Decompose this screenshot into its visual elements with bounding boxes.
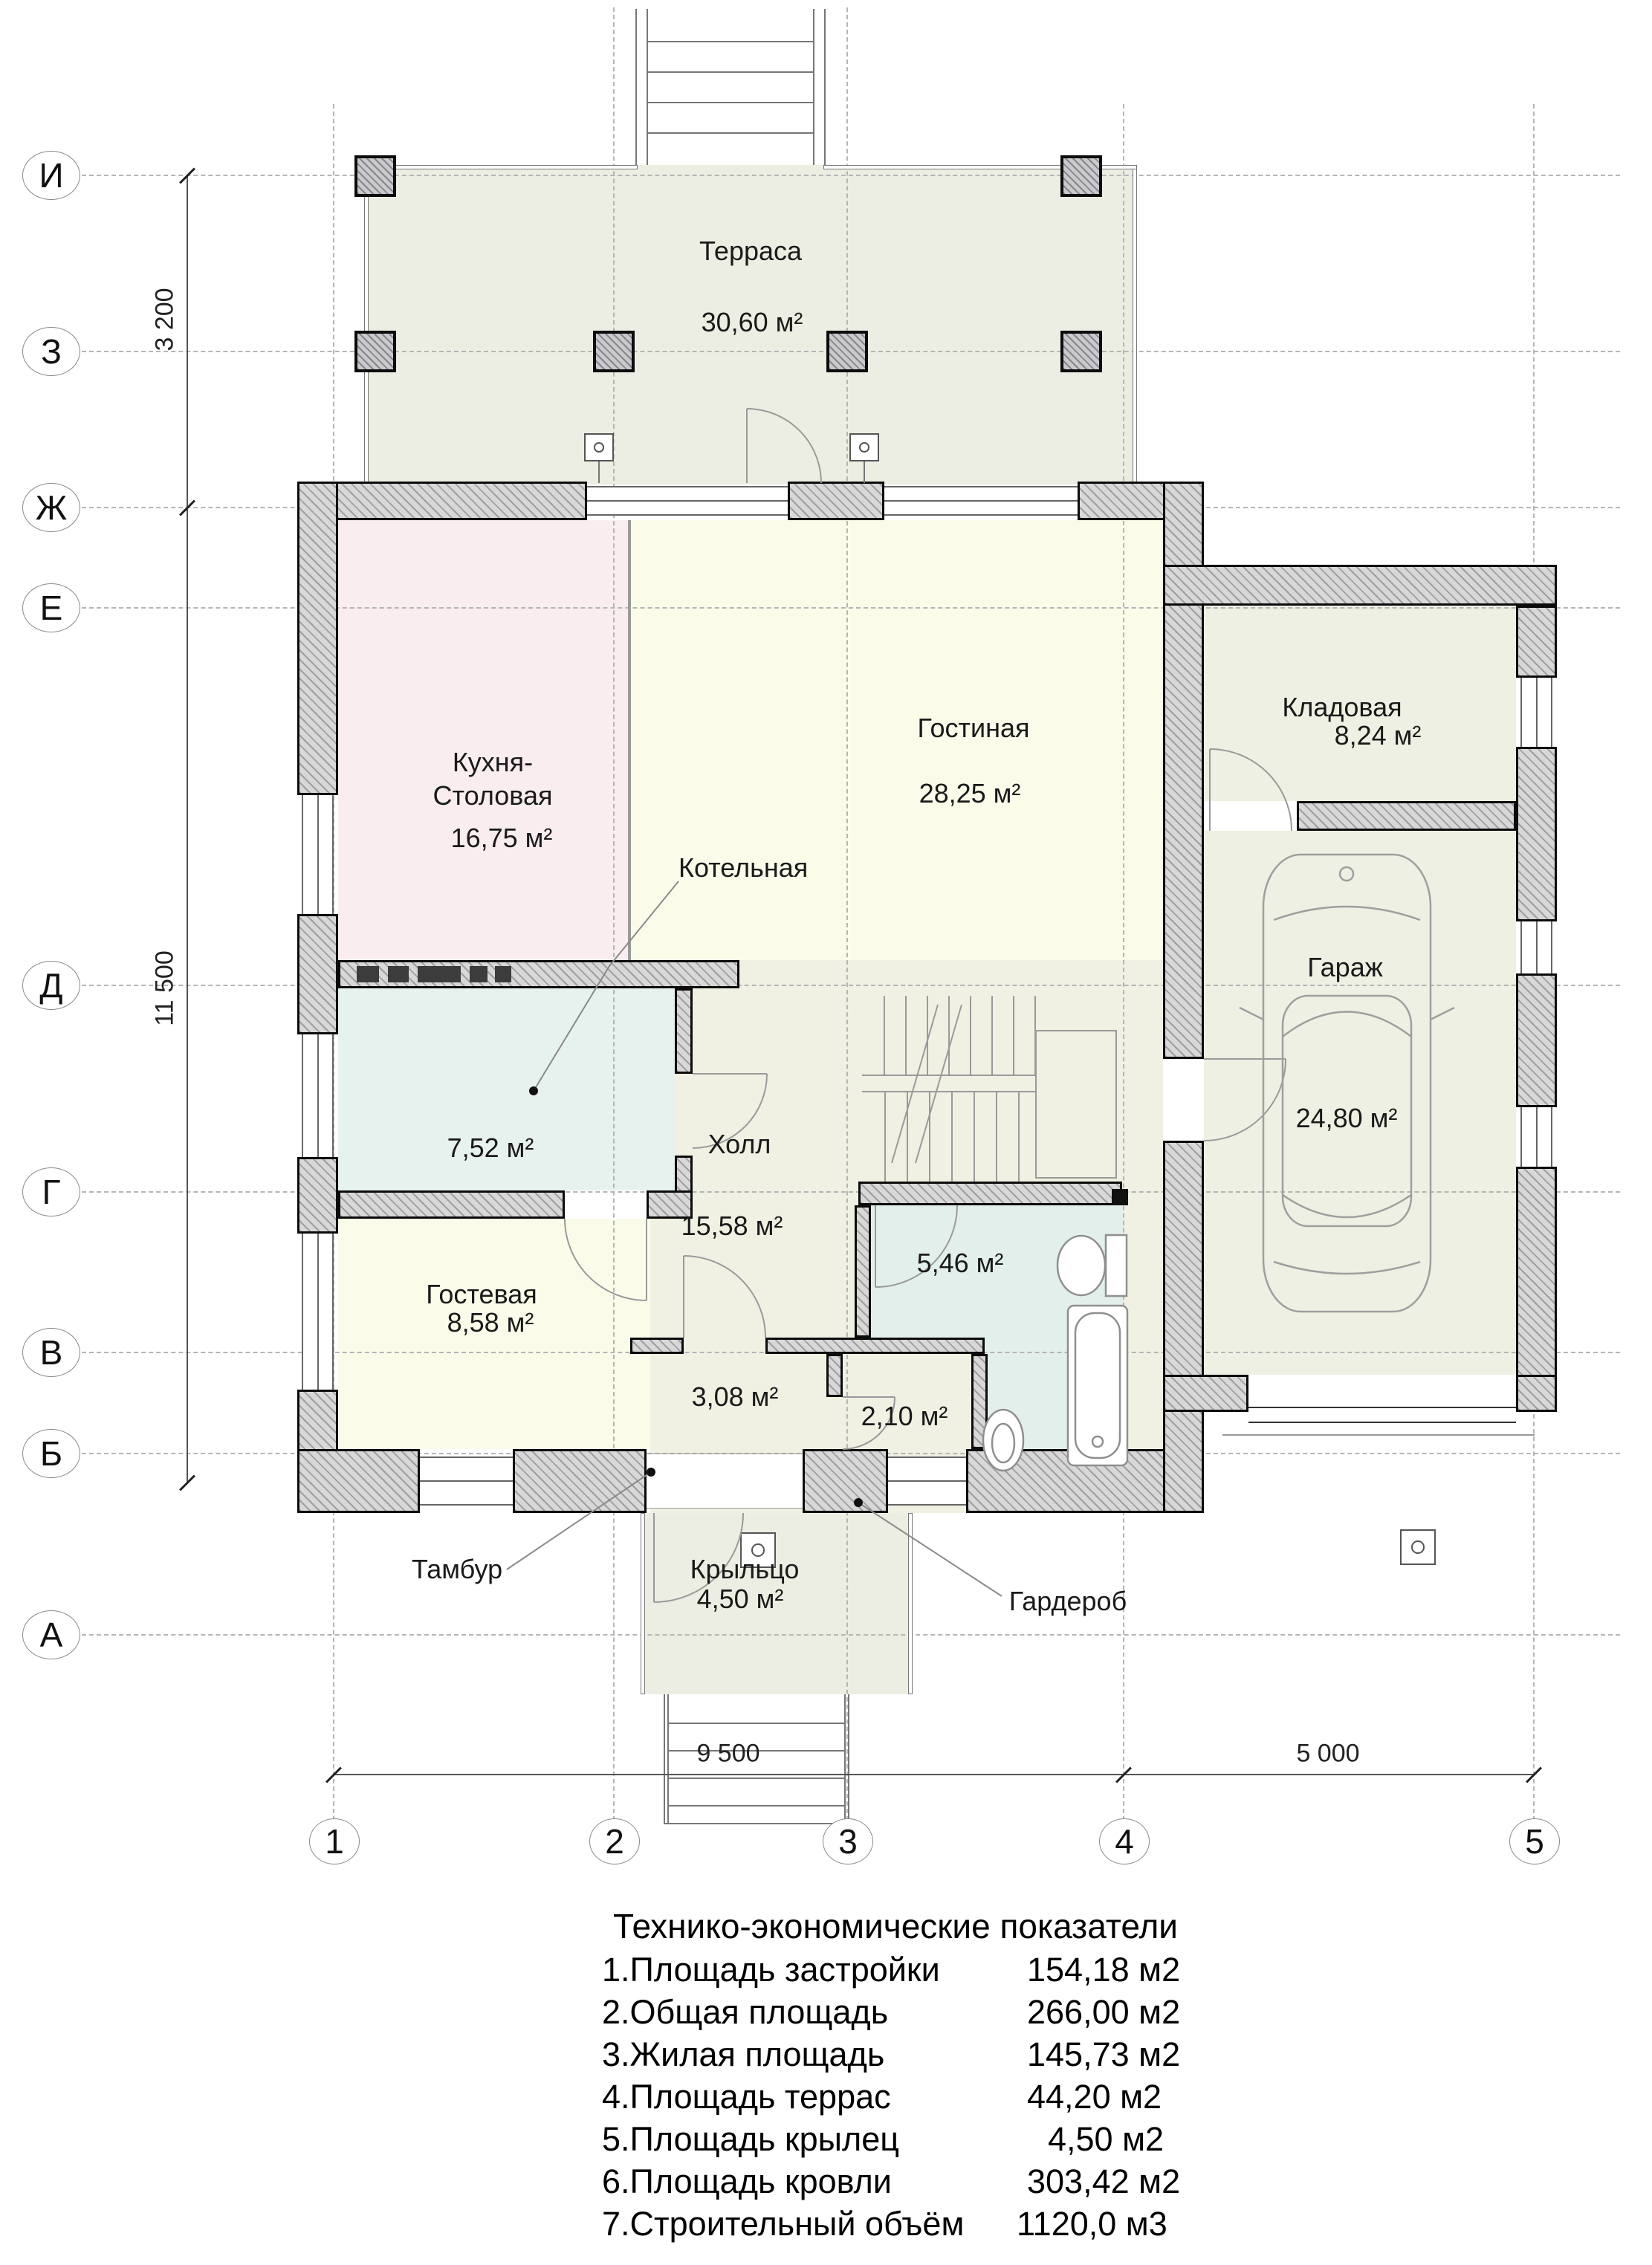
label-wardrobe-area: 2,10 м² [861, 1401, 948, 1432]
label-boiler-area: 7,52 м² [447, 1132, 534, 1164]
label-boiler: Котельная [678, 852, 808, 884]
label-tambour-area: 3,08 м² [692, 1381, 779, 1413]
label-terrace: Терраса [699, 236, 802, 267]
label-guest: Гостевая [426, 1279, 537, 1310]
wall-light-stem [599, 461, 864, 483]
label-kitchen-area: 16,75 м² [451, 823, 553, 854]
floor-plan: 3 200 11 500 9 500 5 000 И З Ж Е Д Г В Б… [0, 0, 1652, 2265]
label-pantry-area: 8,24 м² [1335, 720, 1422, 751]
label-kitchen: Кухня-Столовая [407, 745, 578, 812]
leader-boiler [534, 881, 678, 1091]
label-hall-area: 15,58 м² [681, 1211, 783, 1242]
label-garage-area: 24,80 м² [1296, 1103, 1398, 1134]
label-terrace-area: 30,60 м² [702, 307, 803, 338]
label-wardrobe: Гардероб [1009, 1586, 1127, 1617]
leader-dot [854, 1498, 863, 1507]
label-living: Гостиная [917, 713, 1029, 744]
toilet-tank [1106, 1235, 1127, 1296]
label-pantry: Кладовая [1282, 692, 1402, 723]
door-arc-tambour [684, 1256, 765, 1338]
door-arc-terrace [747, 409, 821, 483]
annotation-overlay [0, 0, 1652, 2265]
leader-dot [529, 1086, 538, 1095]
door-arc-guest [565, 1219, 647, 1300]
label-garage: Гараж [1307, 952, 1383, 983]
bathtub [1068, 1306, 1127, 1465]
car-icon [1240, 855, 1454, 1312]
door-arc-garage-entry [1204, 1059, 1286, 1141]
door-arc-pantry [1210, 749, 1292, 831]
label-hall: Холл [708, 1129, 771, 1160]
label-tambour: Тамбур [412, 1554, 502, 1585]
toilet-bowl [1057, 1236, 1105, 1295]
leader-dot [647, 1468, 655, 1477]
label-porch: Крыльцо [690, 1554, 800, 1585]
label-guest-area: 8,58 м² [447, 1307, 534, 1338]
stair-break-line [892, 1005, 962, 1163]
leader-tambour [507, 1472, 651, 1569]
sink [983, 1410, 1023, 1471]
label-porch-area: 4,50 м² [697, 1584, 784, 1615]
leader-wardrobe [858, 1503, 1002, 1596]
label-living-area: 28,25 м² [919, 778, 1021, 809]
label-bathroom-area: 5,46 м² [917, 1248, 1004, 1279]
